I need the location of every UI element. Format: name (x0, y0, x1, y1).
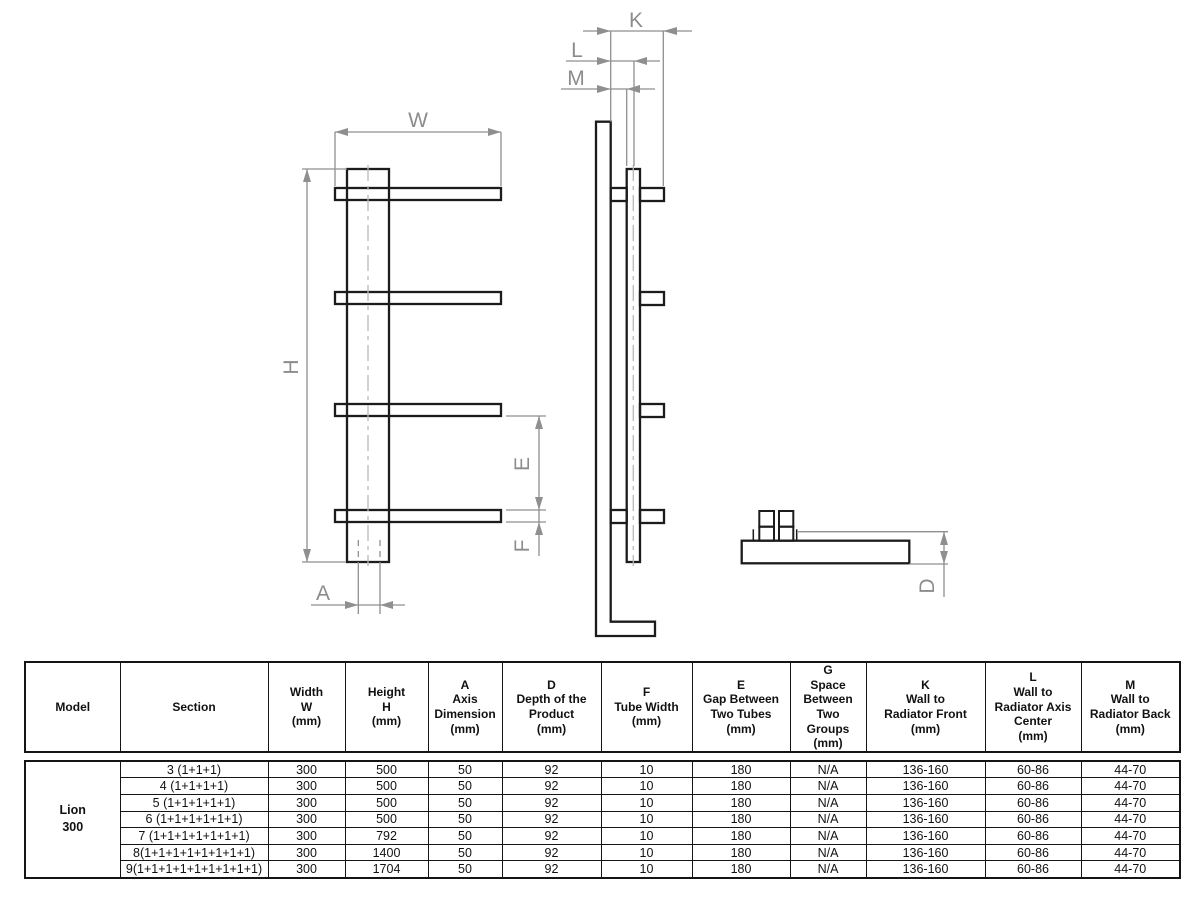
table-row: Lion 3003 (1+1+1)300500509210180N/A136-1… (25, 761, 1180, 778)
spec-table-body: Lion 3003 (1+1+1)300500509210180N/A136-1… (25, 761, 1180, 878)
cell-a: 50 (428, 828, 502, 845)
cell-height: 1400 (345, 844, 428, 861)
cell-a: 50 (428, 778, 502, 795)
front-bar-3 (335, 404, 501, 416)
top-tube2-lower (779, 527, 793, 541)
cell-width: 300 (268, 761, 345, 778)
cell-l: 60-86 (985, 828, 1081, 845)
cell-height: 500 (345, 794, 428, 811)
model-cell: Lion 300 (25, 761, 120, 878)
table-row: 5 (1+1+1+1+1)300500509210180N/A136-16060… (25, 794, 1180, 811)
cell-d: 92 (502, 794, 601, 811)
cell-g: N/A (790, 828, 866, 845)
cell-k: 136-160 (866, 844, 985, 861)
side-bar-1 (640, 188, 664, 201)
cell-d: 92 (502, 811, 601, 828)
cell-g: N/A (790, 861, 866, 878)
cell-section: 8(1+1+1+1+1+1+1+1) (120, 844, 268, 861)
side-wall-bracket (596, 122, 655, 636)
cell-m: 44-70 (1081, 861, 1180, 878)
cell-f: 10 (601, 794, 692, 811)
table-row: 7 (1+1+1+1+1+1+1)300792509210180N/A136-1… (25, 828, 1180, 845)
cell-section: 3 (1+1+1) (120, 761, 268, 778)
spec-table-header: Model Section Width W (mm) Height H (mm)… (24, 661, 1181, 753)
front-view-centerlines (358, 165, 380, 566)
technical-drawing: W H E F A K L M (0, 0, 1200, 660)
cell-e: 180 (692, 861, 790, 878)
side-wall-mount-bottom (611, 510, 627, 523)
cell-width: 300 (268, 794, 345, 811)
cell-l: 60-86 (985, 794, 1081, 811)
cell-d: 92 (502, 861, 601, 878)
dim-label-l: L (571, 39, 583, 62)
cell-m: 44-70 (1081, 761, 1180, 778)
cell-width: 300 (268, 828, 345, 845)
cell-height: 500 (345, 761, 428, 778)
cell-m: 44-70 (1081, 778, 1180, 795)
header-g-space: G Space Between Two Groups (mm) (790, 662, 866, 752)
header-m-wall-back: M Wall to Radiator Back (mm) (1081, 662, 1180, 752)
cell-m: 44-70 (1081, 844, 1180, 861)
cell-e: 180 (692, 761, 790, 778)
header-f-tube-width: F Tube Width (mm) (601, 662, 692, 752)
cell-width: 300 (268, 844, 345, 861)
cell-height: 500 (345, 778, 428, 795)
header-section: Section (120, 662, 268, 752)
header-d-depth: D Depth of the Product (mm) (502, 662, 601, 752)
cell-section: 9(1+1+1+1+1+1+1+1+1) (120, 861, 268, 878)
cell-k: 136-160 (866, 861, 985, 878)
header-k-wall-front: K Wall to Radiator Front (mm) (866, 662, 985, 752)
top-bar-body (742, 541, 910, 564)
top-view (742, 511, 910, 563)
top-tube1-upper (759, 511, 774, 527)
side-view-arrows (597, 27, 677, 93)
header-width: Width W (mm) (268, 662, 345, 752)
front-bar-4 (335, 510, 501, 522)
cell-d: 92 (502, 844, 601, 861)
dim-label-f: F (511, 540, 534, 553)
side-bar-3 (640, 404, 664, 417)
header-model: Model (25, 662, 120, 752)
cell-k: 136-160 (866, 761, 985, 778)
front-view-dimensions (302, 132, 546, 614)
cell-width: 300 (268, 861, 345, 878)
dim-label-m: M (567, 67, 585, 90)
dim-label-w: W (408, 109, 428, 132)
cell-g: N/A (790, 811, 866, 828)
cell-m: 44-70 (1081, 828, 1180, 845)
side-wall-mount-top (611, 188, 627, 201)
cell-f: 10 (601, 761, 692, 778)
header-height: Height H (mm) (345, 662, 428, 752)
cell-section: 7 (1+1+1+1+1+1+1) (120, 828, 268, 845)
spec-sheet: W H E F A K L M (0, 0, 1200, 900)
cell-k: 136-160 (866, 778, 985, 795)
top-tube2-upper (779, 511, 793, 527)
cell-g: N/A (790, 778, 866, 795)
table-row: 4 (1+1+1+1)300500509210180N/A136-16060-8… (25, 778, 1180, 795)
cell-m: 44-70 (1081, 811, 1180, 828)
cell-g: N/A (790, 844, 866, 861)
cell-k: 136-160 (866, 828, 985, 845)
cell-section: 5 (1+1+1+1+1) (120, 794, 268, 811)
cell-a: 50 (428, 861, 502, 878)
cell-e: 180 (692, 844, 790, 861)
dim-label-a: A (316, 582, 330, 605)
header-row: Model Section Width W (mm) Height H (mm)… (25, 662, 1180, 752)
cell-e: 180 (692, 794, 790, 811)
header-e-gap: E Gap Between Two Tubes (mm) (692, 662, 790, 752)
cell-width: 300 (268, 778, 345, 795)
cell-e: 180 (692, 778, 790, 795)
cell-d: 92 (502, 778, 601, 795)
cell-f: 10 (601, 844, 692, 861)
table-row: 6 (1+1+1+1+1+1)300500509210180N/A136-160… (25, 811, 1180, 828)
cell-m: 44-70 (1081, 794, 1180, 811)
cell-a: 50 (428, 761, 502, 778)
cell-f: 10 (601, 778, 692, 795)
cell-l: 60-86 (985, 761, 1081, 778)
cell-a: 50 (428, 811, 502, 828)
top-tube1-lower (759, 527, 774, 541)
cell-width: 300 (268, 811, 345, 828)
cell-l: 60-86 (985, 811, 1081, 828)
cell-g: N/A (790, 794, 866, 811)
cell-f: 10 (601, 828, 692, 845)
header-l-wall-axis: L Wall to Radiator Axis Center (mm) (985, 662, 1081, 752)
cell-height: 500 (345, 811, 428, 828)
table-row: 9(1+1+1+1+1+1+1+1+1)3001704509210180N/A1… (25, 861, 1180, 878)
table-row: 8(1+1+1+1+1+1+1+1)3001400509210180N/A136… (25, 844, 1180, 861)
cell-e: 180 (692, 811, 790, 828)
cell-k: 136-160 (866, 794, 985, 811)
cell-f: 10 (601, 861, 692, 878)
side-bar-2 (640, 292, 664, 305)
side-view (596, 122, 664, 636)
cell-d: 92 (502, 828, 601, 845)
header-a-axis: A Axis Dimension (mm) (428, 662, 502, 752)
cell-height: 792 (345, 828, 428, 845)
spec-table-body-table: Lion 3003 (1+1+1)300500509210180N/A136-1… (24, 760, 1181, 879)
cell-a: 50 (428, 844, 502, 861)
dim-label-k: K (629, 9, 643, 32)
cell-d: 92 (502, 761, 601, 778)
cell-l: 60-86 (985, 844, 1081, 861)
dim-label-d: D (916, 578, 939, 593)
front-bar-2 (335, 292, 501, 304)
cell-f: 10 (601, 811, 692, 828)
cell-l: 60-86 (985, 861, 1081, 878)
cell-height: 1704 (345, 861, 428, 878)
cell-k: 136-160 (866, 811, 985, 828)
cell-section: 6 (1+1+1+1+1+1) (120, 811, 268, 828)
front-view (335, 169, 501, 562)
spec-table: Model Section Width W (mm) Height H (mm)… (24, 661, 1183, 879)
front-bar-1 (335, 188, 501, 200)
side-bar-4 (640, 510, 664, 523)
dim-label-h: H (280, 359, 303, 374)
cell-g: N/A (790, 761, 866, 778)
cell-section: 4 (1+1+1+1) (120, 778, 268, 795)
cell-l: 60-86 (985, 778, 1081, 795)
dim-label-e: E (511, 457, 534, 471)
cell-a: 50 (428, 794, 502, 811)
cell-e: 180 (692, 828, 790, 845)
